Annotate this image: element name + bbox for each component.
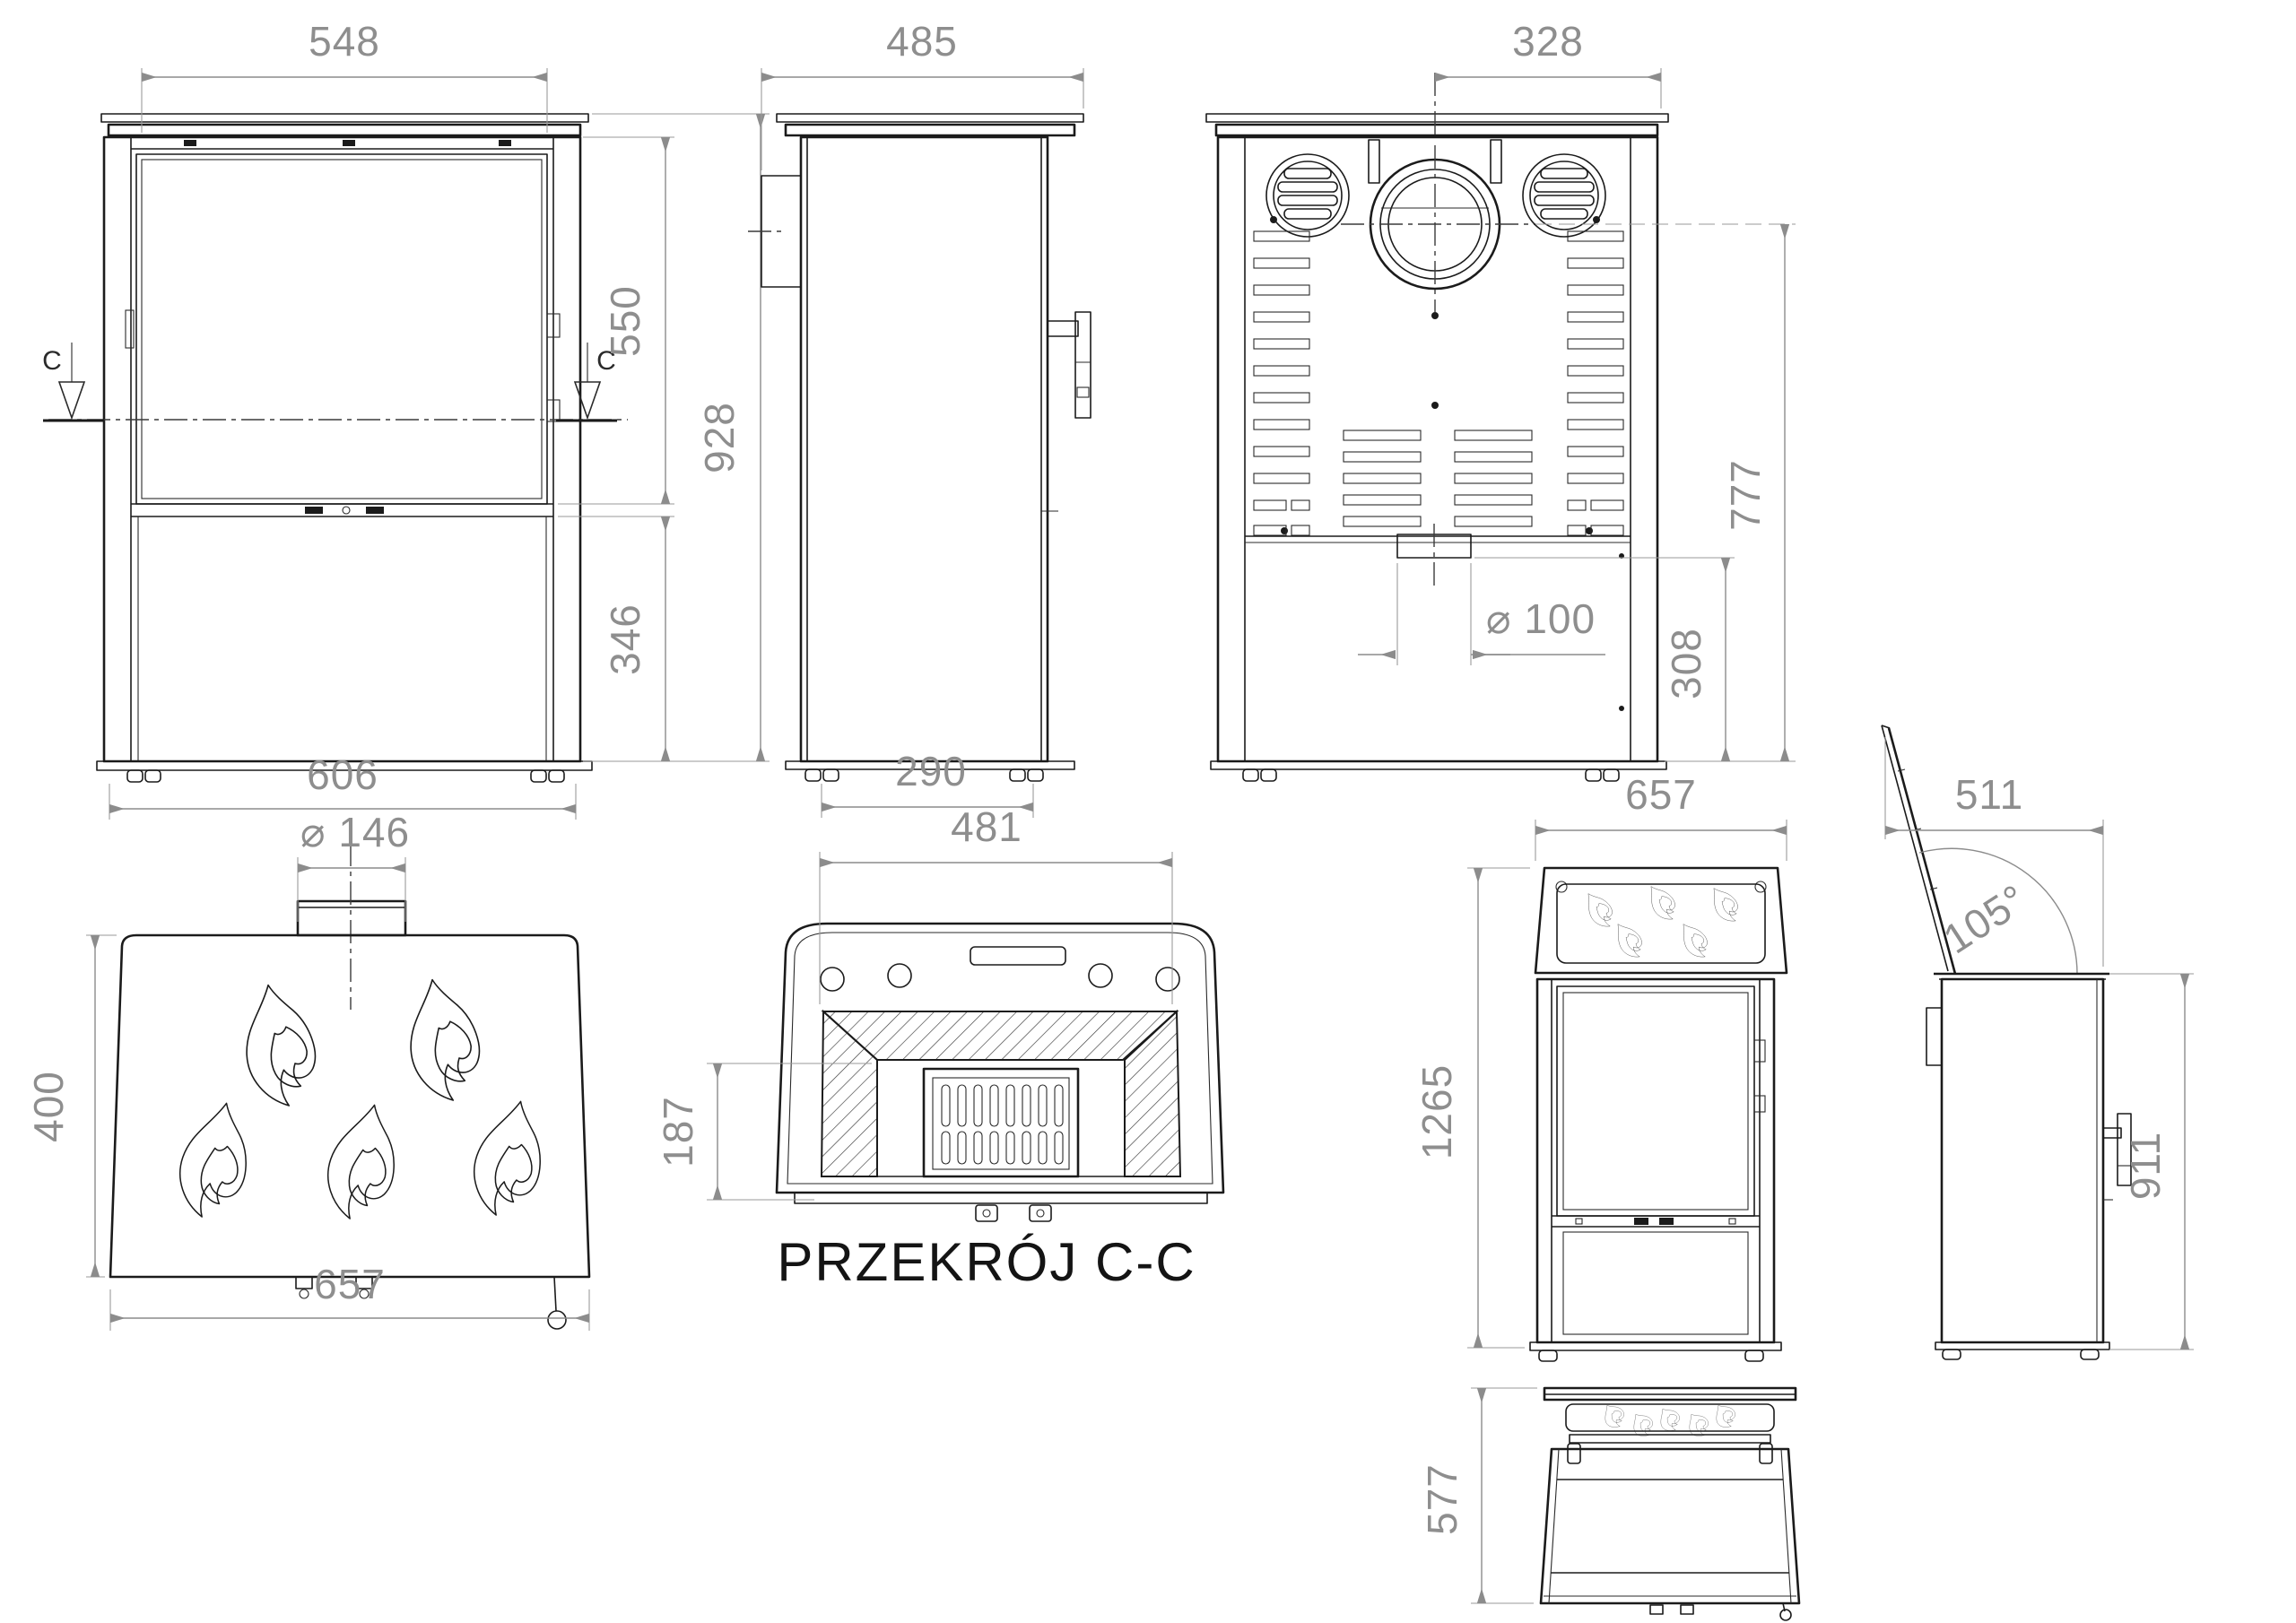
flame-icon: [1608, 918, 1649, 962]
front-view: C C 548 550 346 928 606: [42, 18, 770, 820]
section-marker-left: C: [42, 343, 104, 421]
flame-icon: [468, 1097, 549, 1220]
lid-flame-cutouts: [1578, 881, 1745, 962]
dim-front-base-height: 346: [602, 603, 648, 675]
flame-icon: [230, 978, 326, 1113]
open-top-view: 577: [1419, 1388, 1799, 1620]
dim-top-depth: 400: [25, 1071, 72, 1142]
dim-rear-outlet-diameter: ⌀ 100: [1486, 595, 1596, 642]
rear-foot-left: [1243, 769, 1276, 781]
side-foot-rear: [1010, 769, 1043, 781]
dim-open-side-body-height: 911: [2122, 1132, 2169, 1200]
flame-icon: [1704, 882, 1745, 926]
side-foot-front: [805, 769, 839, 781]
section-title: PRZEKRÓJ C-C: [777, 1232, 1196, 1292]
section-view: 481 187 PRZEKRÓJ C-C: [655, 803, 1223, 1292]
dim-open-top-depth: 577: [1419, 1463, 1465, 1535]
flame-icon: [1627, 1409, 1658, 1441]
left-foot: [127, 770, 161, 782]
right-foot: [531, 770, 564, 782]
dim-front-glass-height: 550: [602, 285, 648, 357]
dim-section-grate-depth: 187: [655, 1096, 701, 1167]
dim-rear-flue-offset: 328: [1512, 18, 1584, 65]
dim-rear-ashpan-height: 308: [1663, 628, 1709, 699]
left-vent-grille: [1266, 154, 1349, 237]
right-vent-slots: [1568, 231, 1623, 535]
flame-cutout-icons: [174, 973, 549, 1224]
dim-section-opening-width: 481: [951, 803, 1022, 850]
flame-icon: [322, 1100, 403, 1224]
dim-open-front-width: 657: [1625, 771, 1697, 818]
flame-icon: [174, 1098, 255, 1222]
dim-front-total-height: 928: [696, 402, 743, 473]
dim-open-side-depth: 511: [1955, 771, 2023, 818]
rear-shield-box: [1926, 1008, 1942, 1065]
firebox-lining: [822, 1011, 1180, 1176]
flame-icon: [1641, 881, 1683, 924]
open-front-view: 657 1265: [1413, 771, 1787, 1361]
damper-chain-icon: [1780, 1610, 1791, 1620]
flame-icon: [1578, 888, 1620, 932]
cut-label-left: C: [42, 346, 62, 376]
glass-door: [126, 154, 560, 516]
rear-foot-right: [1586, 769, 1619, 781]
flue-outlet: [1341, 145, 1535, 312]
flame-icon: [1674, 918, 1715, 962]
center-vent-slots: [1344, 430, 1532, 526]
damper-chain-icon: [548, 1311, 566, 1329]
rear-view: 328 777 308 ⌀ 100: [1206, 18, 1796, 781]
grate: [924, 1069, 1078, 1176]
technical-drawing-sheet: C C 548 550 346 928 606: [0, 0, 2296, 1623]
door-handle: [1048, 312, 1091, 418]
dim-side-depth: 485: [886, 18, 958, 65]
flame-icon: [1683, 1409, 1714, 1441]
open-side-view: 105° 511 911: [1882, 725, 2194, 1359]
side-view: 485 290: [748, 18, 1091, 818]
dim-open-side-lid-angle: 105°: [1935, 875, 2035, 963]
flame-icon: [395, 973, 491, 1107]
dim-open-front-total-height: 1265: [1413, 1064, 1460, 1159]
flue-collar: [298, 901, 405, 935]
dim-top-width: 657: [314, 1261, 386, 1307]
base-panel: [138, 516, 546, 761]
dim-front-width-bottom: 606: [307, 751, 378, 798]
dim-front-width-top: 548: [309, 18, 380, 65]
dim-top-flue-diameter: ⌀ 146: [300, 809, 410, 855]
left-vent-slots: [1254, 231, 1309, 535]
top-view: ⌀ 146 400 657: [25, 809, 589, 1331]
dim-rear-flue-height: 777: [1722, 459, 1769, 531]
dim-side-feet-spacing: 290: [895, 748, 967, 794]
